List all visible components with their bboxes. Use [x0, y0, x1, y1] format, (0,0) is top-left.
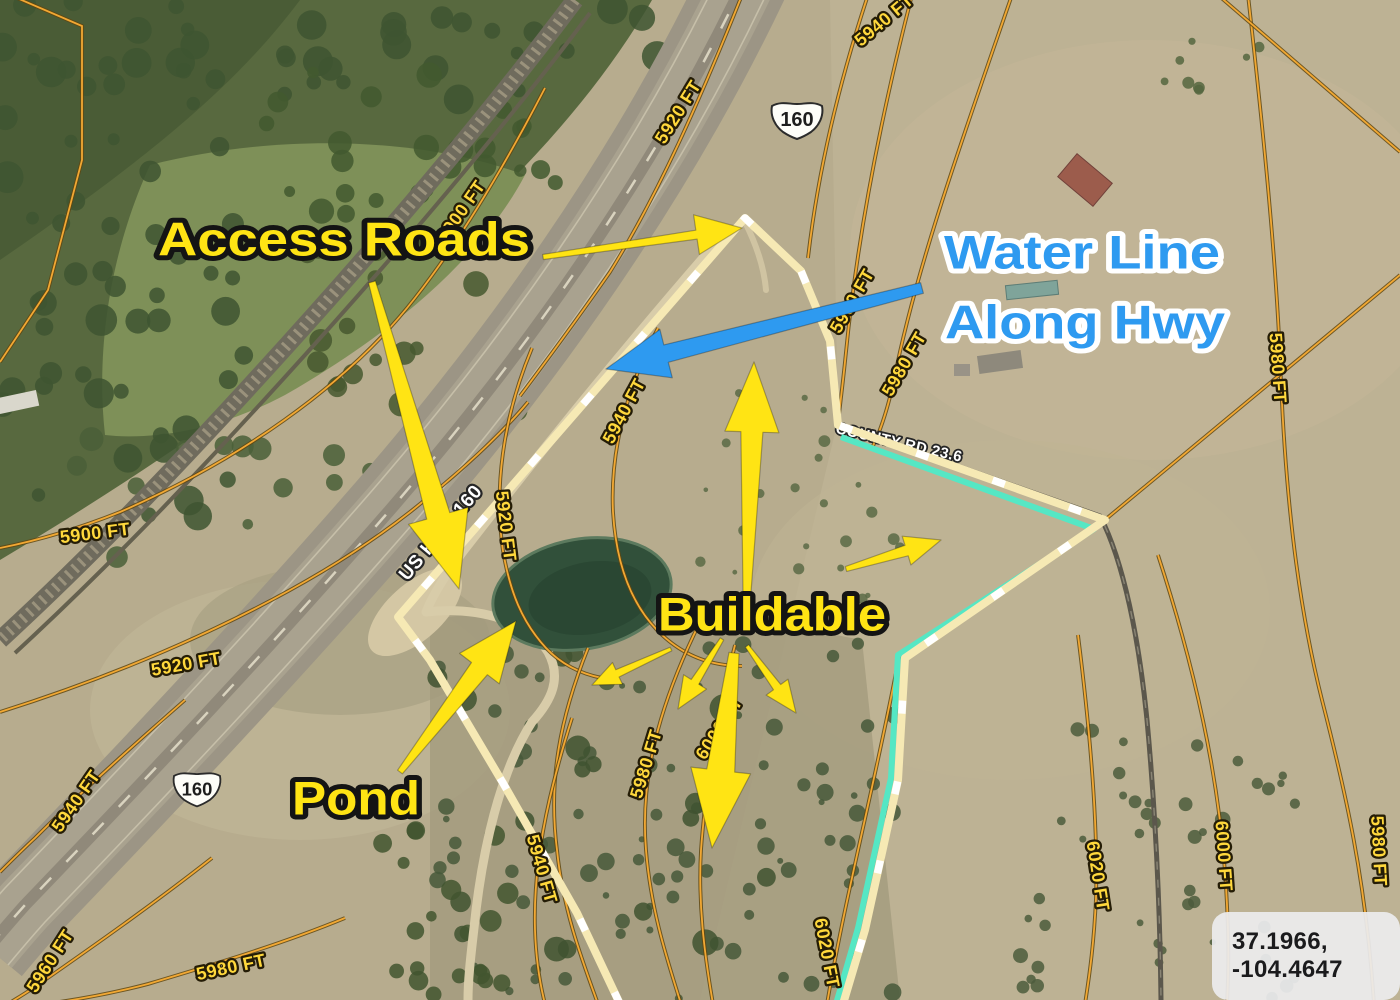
shrub	[84, 378, 114, 408]
shrub	[225, 271, 240, 286]
shrub	[531, 160, 550, 179]
shrub	[206, 69, 226, 89]
shrub	[75, 366, 91, 382]
shrub	[1161, 78, 1169, 86]
shrub	[744, 910, 754, 920]
shrub	[866, 507, 877, 518]
shrub	[488, 704, 501, 717]
shrub	[544, 937, 569, 962]
shrub	[26, 212, 39, 225]
shrub	[40, 362, 62, 384]
shrub	[725, 943, 742, 960]
shrub	[825, 835, 836, 846]
shrub	[1071, 722, 1085, 736]
shrub	[804, 976, 820, 992]
shrub	[101, 217, 119, 235]
shrub	[1262, 782, 1275, 795]
shrub	[484, 23, 500, 39]
shrub	[580, 864, 598, 882]
shrub	[32, 488, 45, 501]
shrub	[819, 435, 831, 447]
shrub	[336, 184, 355, 203]
shrub	[1179, 797, 1193, 811]
shrub	[187, 97, 200, 110]
shrub	[682, 810, 699, 827]
shrub	[791, 483, 800, 492]
shrub	[276, 46, 294, 64]
shrub	[77, 77, 96, 96]
shrub	[1032, 961, 1045, 974]
shrub	[122, 48, 152, 78]
shrub	[1119, 737, 1128, 746]
shrub	[1017, 981, 1030, 994]
shrub	[1129, 795, 1142, 808]
shrub	[86, 304, 118, 336]
shrub	[493, 974, 510, 991]
shrub	[671, 870, 683, 882]
shrub	[1175, 56, 1184, 65]
shrub	[653, 873, 666, 886]
shrub	[565, 736, 590, 761]
shrub	[803, 543, 809, 549]
shrub	[268, 92, 289, 113]
shrub	[1243, 54, 1250, 61]
shrub	[67, 456, 87, 476]
shrub	[816, 762, 829, 775]
shrub	[307, 351, 329, 373]
shrub	[514, 664, 528, 678]
shrub	[1013, 948, 1028, 963]
shrub	[837, 565, 844, 572]
shrub	[149, 288, 165, 304]
shrub	[80, 427, 104, 451]
shrub	[1188, 38, 1195, 45]
water-line-label-line1: Water Line	[944, 226, 1220, 279]
shrub	[389, 964, 404, 979]
contour-label: 5980 FT	[1367, 815, 1391, 886]
shrub	[369, 193, 384, 208]
shrub	[65, 135, 78, 148]
shrub	[447, 851, 460, 864]
shrub	[361, 86, 382, 107]
shrub	[558, 972, 572, 986]
map-canvas[interactable]: US HWY 160 COUNTY RD 23.6 5920 FT 5940 F…	[0, 0, 1400, 1000]
shrub	[573, 809, 583, 819]
shrub	[273, 478, 292, 497]
shrub	[514, 164, 526, 176]
shrub	[323, 444, 345, 466]
shrub	[369, 354, 382, 367]
shrub	[103, 73, 125, 95]
shrub	[861, 719, 874, 732]
shrub	[444, 85, 474, 115]
shrub	[176, 63, 192, 79]
shrub	[651, 809, 663, 821]
shrub	[307, 67, 319, 79]
shrub	[373, 834, 392, 853]
shrub	[398, 857, 410, 869]
shield-route-number: 160	[182, 778, 213, 799]
shrub	[180, 31, 209, 60]
shrub	[443, 816, 450, 823]
shrub	[58, 61, 76, 79]
pond-label: Pond	[292, 772, 420, 825]
shrub	[585, 756, 601, 772]
shrub	[820, 499, 828, 507]
shrub	[449, 837, 462, 850]
shrub	[1135, 829, 1145, 839]
shrub	[331, 150, 353, 172]
shrub	[615, 914, 630, 929]
shrub	[856, 482, 862, 488]
shrub	[219, 370, 238, 389]
shrub	[336, 75, 350, 89]
shrub	[326, 474, 343, 491]
access-roads-label: Access Roads	[158, 213, 530, 266]
coordinates-badge: 37.1966, -104.4647	[1212, 912, 1400, 1000]
shrub	[757, 837, 774, 854]
shrub	[802, 395, 808, 401]
shrub	[114, 384, 129, 399]
shrub	[1191, 739, 1203, 751]
shrub	[781, 862, 797, 878]
shrub	[235, 346, 254, 365]
shrub	[441, 880, 461, 900]
shrub	[210, 137, 229, 156]
shrub	[633, 854, 644, 865]
shrub	[634, 903, 652, 921]
shrub	[28, 53, 41, 66]
shrub	[211, 297, 240, 326]
shrub	[516, 895, 530, 909]
shrub	[1137, 919, 1144, 926]
shrub	[755, 818, 766, 829]
shrub	[417, 62, 442, 87]
shrub	[817, 784, 834, 801]
shrub	[125, 309, 150, 334]
shrub	[667, 891, 680, 904]
shrub	[732, 570, 737, 575]
shrub	[646, 927, 653, 934]
shrub	[722, 438, 731, 447]
shrub	[243, 519, 254, 530]
shrub	[1290, 799, 1300, 809]
shrub	[797, 778, 810, 791]
shrub	[139, 161, 161, 183]
shrub	[633, 681, 646, 694]
shrub	[597, 853, 615, 871]
shrub	[220, 472, 236, 488]
shrub	[1199, 828, 1207, 836]
shrub	[1057, 817, 1066, 826]
shield-route-number: 160	[780, 109, 813, 131]
shrub	[452, 12, 472, 32]
shrub	[505, 865, 518, 878]
shrub	[840, 535, 852, 547]
shrub	[778, 972, 789, 983]
shrub	[535, 672, 545, 682]
shrub	[1252, 778, 1263, 789]
shrub	[433, 861, 446, 874]
shrub	[1194, 85, 1204, 95]
shrub	[616, 929, 626, 939]
shrub	[667, 764, 676, 773]
shrub	[409, 971, 429, 991]
shrub	[204, 266, 219, 281]
shrub	[1025, 915, 1033, 923]
shrub	[820, 407, 827, 414]
shrub	[1039, 920, 1050, 931]
shrub	[704, 488, 709, 493]
shrub	[1182, 77, 1194, 89]
shrub	[339, 318, 355, 334]
shrub	[99, 56, 118, 75]
shrub	[766, 719, 783, 736]
shrub	[1277, 780, 1284, 787]
shrub	[603, 892, 610, 899]
shrub	[793, 563, 804, 574]
shrub	[36, 318, 54, 336]
shrub	[1031, 979, 1044, 992]
shrub	[757, 868, 776, 887]
shrub	[64, 262, 87, 285]
water-line-label-line2: Along Hwy	[945, 296, 1225, 349]
shrub	[284, 186, 295, 197]
shrub	[1279, 772, 1287, 780]
shrub	[426, 911, 437, 922]
shrub	[695, 557, 705, 567]
shrub	[667, 838, 685, 856]
shrub	[463, 271, 489, 297]
shrub	[759, 760, 769, 770]
shrub	[629, 5, 655, 31]
shrub	[497, 883, 518, 904]
shrub	[1113, 767, 1125, 779]
shrub	[743, 883, 756, 896]
shrub	[1034, 893, 1045, 904]
shrub	[480, 910, 502, 932]
shrub	[431, 6, 454, 29]
shrub	[410, 342, 424, 356]
shrub	[147, 309, 171, 333]
shrub	[840, 835, 856, 851]
shrub	[114, 444, 143, 473]
shrub	[777, 858, 783, 864]
shrub	[827, 650, 839, 662]
shrub	[407, 922, 425, 940]
shrub	[438, 798, 454, 814]
shrub	[815, 454, 823, 462]
shrub	[105, 276, 126, 297]
shrub	[474, 964, 487, 977]
shrub	[125, 17, 152, 44]
building-shed	[954, 364, 970, 376]
shrub	[1119, 792, 1127, 800]
shrub	[108, 133, 120, 145]
shrub	[1184, 885, 1196, 897]
shrub	[1188, 896, 1200, 908]
shrub	[851, 792, 858, 799]
shrub	[1233, 756, 1244, 767]
buildable-label: Buildable	[658, 588, 886, 641]
shrub	[297, 10, 327, 40]
shrub	[414, 135, 439, 160]
shrub	[380, 19, 407, 46]
shrub	[259, 116, 274, 131]
shrub	[548, 175, 563, 190]
